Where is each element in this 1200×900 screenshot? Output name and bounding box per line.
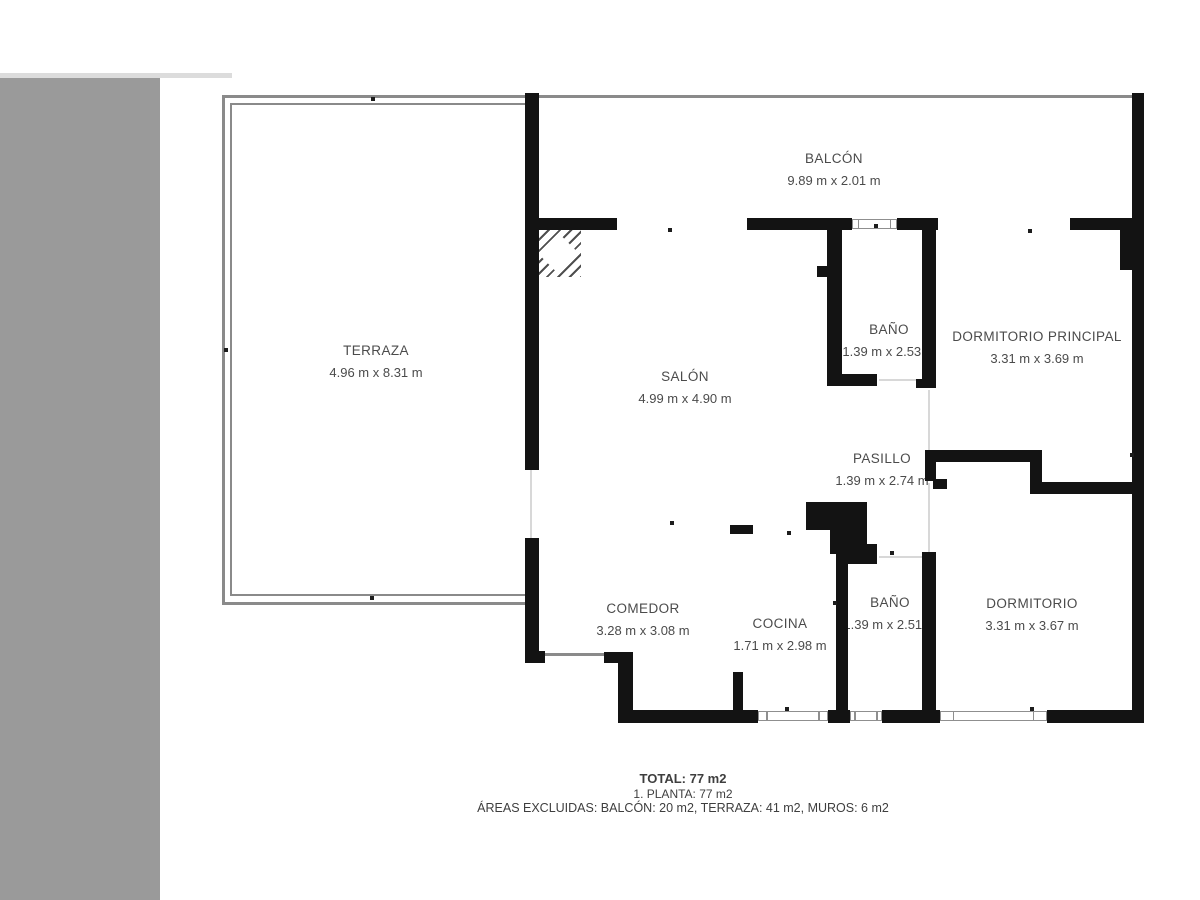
room-label-dormitorio-principal: DORMITORIO PRINCIPAL 3.31 m x 3.69 m	[952, 330, 1122, 366]
room-name: TERRAZA	[329, 344, 422, 358]
wall	[922, 230, 936, 388]
wall	[836, 554, 848, 712]
opening-line	[928, 483, 930, 552]
wall	[1132, 93, 1144, 723]
marker-dot	[668, 228, 672, 232]
wall	[730, 525, 753, 534]
room-dimensions: 1.71 m x 2.98 m	[733, 639, 826, 653]
room-label-cocina: COCINA 1.71 m x 2.98 m	[733, 617, 826, 653]
room-label-pasillo: PASILLO 1.39 m x 2.74 m	[835, 452, 928, 488]
wall	[817, 266, 838, 277]
wall	[747, 218, 852, 230]
marker-dot	[1130, 453, 1134, 457]
wall	[925, 450, 936, 481]
wall	[922, 552, 936, 722]
window	[758, 711, 828, 721]
wall	[836, 552, 877, 564]
excluded-areas: ÁREAS EXCLUIDAS: BALCÓN: 20 m2, TERRAZA:…	[477, 801, 889, 816]
room-name: COCINA	[733, 617, 826, 631]
wall	[618, 652, 633, 712]
area-summary: TOTAL: 77 m2 1. PLANTA: 77 m2 ÁREAS EXCL…	[477, 771, 889, 816]
room-label-terraza: TERRAZA 4.96 m x 8.31 m	[329, 344, 422, 380]
marker-dot	[787, 531, 791, 535]
room-name: BALCÓN	[787, 152, 880, 166]
marker-dot	[785, 707, 789, 711]
marker-dot	[224, 348, 228, 352]
wall	[525, 538, 539, 652]
room-name: DORMITORIO	[985, 597, 1078, 611]
opening-line	[879, 556, 922, 558]
opening-line	[928, 390, 930, 450]
room-dimensions: 4.96 m x 8.31 m	[329, 366, 422, 380]
wall	[925, 450, 1040, 462]
marker-dot	[833, 601, 837, 605]
room-name: PASILLO	[835, 452, 928, 466]
wall	[525, 93, 539, 470]
window	[940, 711, 1047, 721]
wall	[882, 710, 940, 723]
railing-line	[230, 594, 526, 596]
room-dimensions: 3.28 m x 3.08 m	[596, 624, 689, 638]
room-dimensions: 1.39 m x 2.74 m	[835, 474, 928, 488]
room-label-dormitorio: DORMITORIO 3.31 m x 3.67 m	[985, 597, 1078, 633]
marker-dot	[1030, 707, 1034, 711]
wall	[525, 651, 545, 663]
shaft-diamond	[538, 233, 579, 274]
opening-line	[530, 470, 532, 538]
room-dimensions: 4.99 m x 4.90 m	[638, 392, 731, 406]
railing-line	[222, 95, 1132, 98]
page: BALCÓN 9.89 m x 2.01 m TERRAZA 4.96 m x …	[0, 0, 1200, 900]
room-label-salon: SALÓN 4.99 m x 4.90 m	[638, 370, 731, 406]
wall	[733, 672, 743, 712]
wall	[1120, 228, 1144, 270]
window-line	[543, 653, 605, 656]
wall	[828, 710, 850, 723]
marker-dot	[874, 224, 878, 228]
marker-dot	[670, 521, 674, 525]
wall	[1047, 710, 1144, 723]
room-dimensions: 3.31 m x 3.67 m	[985, 619, 1078, 633]
floor-area: 1. PLANTA: 77 m2	[477, 787, 889, 801]
railing-line	[230, 103, 232, 596]
room-name: COMEDOR	[596, 602, 689, 616]
opening-line	[879, 379, 916, 381]
marker-dot	[1028, 229, 1032, 233]
total-area: TOTAL: 77 m2	[477, 771, 889, 787]
room-label-balcon: BALCÓN 9.89 m x 2.01 m	[787, 152, 880, 188]
wall	[827, 230, 842, 386]
left-gray-panel	[0, 78, 160, 900]
railing-line	[222, 602, 527, 605]
room-name: DORMITORIO PRINCIPAL	[952, 330, 1122, 344]
room-dimensions: 9.89 m x 2.01 m	[787, 174, 880, 188]
wall	[525, 218, 617, 230]
marker-dot	[371, 97, 375, 101]
window	[850, 711, 882, 721]
marker-dot	[890, 551, 894, 555]
railing-line	[230, 103, 526, 105]
room-dimensions: 3.31 m x 3.69 m	[952, 352, 1122, 366]
wall	[897, 218, 938, 230]
wall	[806, 502, 867, 530]
room-label-comedor: COMEDOR 3.28 m x 3.08 m	[596, 602, 689, 638]
room-name: SALÓN	[638, 370, 731, 384]
wall	[933, 479, 947, 489]
marker-dot	[370, 596, 374, 600]
wall	[830, 374, 877, 386]
wall	[1030, 482, 1132, 494]
shaft-hatch	[536, 230, 581, 277]
